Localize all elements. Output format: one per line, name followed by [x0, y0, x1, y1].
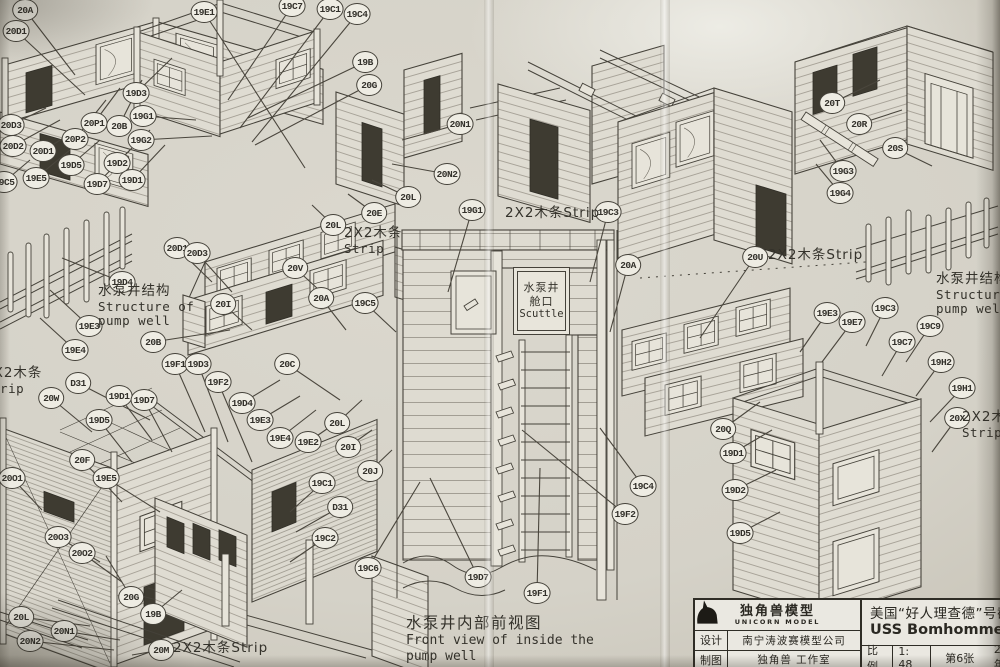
callout-20b: 20B [140, 331, 166, 353]
callout-20t: 20T [819, 92, 845, 114]
callout-19b: 19B [140, 603, 166, 625]
callout-19d2: 19D2 [722, 479, 749, 501]
unicorn-logo-icon [695, 600, 719, 626]
callout-20o1: 20O1 [0, 467, 25, 489]
callout-19d7: 19D7 [84, 173, 111, 195]
callout-19d7: 19D7 [131, 389, 158, 411]
callout-19c4: 19C4 [630, 475, 657, 497]
callout-20m: 20M [148, 639, 174, 661]
callout-20l: 20L [8, 606, 34, 628]
title-block-right: 美国“好人理查德”号截面 USS Bomhomme Ri 比例 1: 48 第6… [862, 600, 1000, 667]
callout-20n2: 20N2 [17, 630, 44, 652]
design-label: 设计 [695, 631, 728, 650]
strip-label-right-edge: 2X2木条Strip [962, 410, 1000, 440]
callout-20p2: 20P2 [62, 128, 89, 150]
caption-en-line2: pump well [406, 649, 594, 665]
callout-19e1: 19E1 [191, 1, 218, 23]
callout-20i: 20I [335, 436, 361, 458]
callout-20j: 20J [357, 460, 383, 482]
callout-20g: 20G [118, 586, 144, 608]
callout-19d1: 19D1 [720, 442, 747, 464]
strip-label-center: 2X2木条Strip [505, 206, 600, 222]
callout-20d1: 20D1 [3, 20, 30, 42]
callout-19e2: 19E2 [295, 431, 322, 453]
instruction-sheet: 20A20D119E119C719C119C419B20G19D319G119G… [0, 0, 1000, 667]
callout-20n1: 20N1 [51, 620, 78, 642]
callout-19b: 19B [352, 51, 378, 73]
scuttle-cn-line2: 舱口 [530, 295, 554, 309]
callout-20d3: 20D3 [0, 114, 24, 136]
callout-20r: 20R [846, 113, 872, 135]
strip-label-left-edge: 2X2木条Strip [0, 366, 42, 396]
draft-row: 制图 独角兽 工作室 [695, 651, 860, 667]
design-row: 设计 南宁涛波赛模型公司 [695, 631, 860, 651]
callout-19e3: 19E3 [814, 302, 841, 324]
callout-20g: 20G [356, 74, 382, 96]
strip-label-bottom-left: 2X2木条Strip [173, 641, 268, 657]
sheet-meta-row: 比例 1: 48 第6张 2017年 [862, 646, 1000, 667]
callout-20l: 20L [320, 214, 346, 236]
callout-20d3: 20D3 [184, 242, 211, 264]
callout-19e3: 19E3 [247, 409, 274, 431]
title-block-left: 独角兽模型 UNICORN MODEL 设计 南宁涛波赛模型公司 制图 独角兽 … [695, 600, 862, 667]
callout-19g1: 19G1 [459, 199, 486, 221]
callout-20b: 20B [106, 115, 132, 137]
callout-19c1: 19C1 [309, 472, 336, 494]
callout-20l: 20L [395, 186, 421, 208]
callout-19e5: 19E5 [93, 467, 120, 489]
callout-19e4: 19E4 [267, 427, 294, 449]
callout-20i: 20I [210, 293, 236, 315]
pump-well-structure-label-right: 水泵井结构Structure ofpump well [936, 272, 1000, 316]
scuttle-label-box: 水泵井 舱口 Scuttle [513, 267, 570, 335]
callout-19c4: 19C4 [344, 3, 371, 25]
callout-d31: D31 [327, 496, 353, 518]
callout-20o3: 20O3 [45, 526, 72, 548]
callout-19f2: 19F2 [612, 503, 639, 525]
callout-19c5: 19C5 [352, 292, 379, 314]
callout-19g1: 19G1 [130, 105, 157, 127]
callout-20d1: 20D1 [30, 140, 57, 162]
callout-19f1: 19F1 [524, 582, 551, 604]
callout-20n1: 20N1 [447, 113, 474, 135]
draft-value: 独角兽 工作室 [728, 651, 860, 667]
callout-19d5: 19D5 [58, 154, 85, 176]
scuttle-cn-line1: 水泵井 [524, 281, 560, 295]
callout-19e4: 19E4 [62, 339, 89, 361]
callout-20c: 20C [274, 353, 300, 375]
callout-19c9: 19C9 [917, 315, 944, 337]
title-block: 独角兽模型 UNICORN MODEL 设计 南宁涛波赛模型公司 制图 独角兽 … [693, 598, 1000, 667]
strip-label-center-left: 2X2木条Strip [344, 226, 402, 256]
pump-well-structure-label-left: 水泵井结构Structure ofpump well [98, 284, 194, 328]
brand-name-en: UNICORN MODEL [735, 619, 821, 626]
callout-d31: D31 [65, 372, 91, 394]
sheet-title-cn: 美国“好人理查德”号截面 [870, 606, 1000, 622]
callout-19d5: 19D5 [86, 409, 113, 431]
callout-19h2: 19H2 [928, 351, 955, 373]
callout-19g2: 19G2 [128, 129, 155, 151]
scale-label: 比例 [862, 646, 893, 667]
callout-19d3: 19D3 [123, 82, 150, 104]
callout-20n2: 20N2 [434, 163, 461, 185]
callout-19c1: 19C1 [317, 0, 344, 20]
sheet-title-cell: 美国“好人理查德”号截面 USS Bomhomme Ri [862, 600, 1000, 646]
callout-20q: 20Q [710, 418, 736, 440]
callout-20f: 20F [69, 449, 95, 471]
scale-value: 1: 48 [893, 646, 930, 667]
callout-19c6: 19C6 [355, 557, 382, 579]
callout-19c3: 19C3 [872, 297, 899, 319]
caption-cn: 水泵井内部前视图 [406, 611, 594, 633]
sheet-year: 2017年 [989, 646, 1000, 667]
callout-19f2: 19F2 [205, 371, 232, 393]
callout-19d3: 19D3 [185, 353, 212, 375]
callout-20o2: 20O2 [69, 542, 96, 564]
callout-20a: 20A [12, 0, 38, 21]
strip-label-right: 2X2木条Strip [768, 248, 863, 264]
callout-19h1: 19H1 [949, 377, 976, 399]
sheet-title-en: USS Bomhomme Ri [870, 622, 1000, 639]
callout-20v: 20V [282, 257, 308, 279]
brand-text: 独角兽模型 UNICORN MODEL [735, 605, 821, 626]
callout-19e5: 19E5 [23, 167, 50, 189]
callout-19c7: 19C7 [889, 331, 916, 353]
brand-name-cn: 独角兽模型 [740, 605, 815, 618]
callout-19e7: 19E7 [839, 311, 866, 333]
caption-en-line1: Front view of inside the [406, 633, 594, 649]
callout-20l: 20L [324, 412, 350, 434]
callout-19d1: 19D1 [119, 169, 146, 191]
callout-19d1: 19D1 [106, 385, 133, 407]
sheet-number: 第6张 [931, 646, 989, 667]
callout-19d5: 19D5 [727, 522, 754, 544]
callout-19c2: 19C2 [312, 527, 339, 549]
callout-20d2: 20D2 [0, 135, 26, 157]
callout-19g3: 19G3 [830, 160, 857, 182]
brand-cell: 独角兽模型 UNICORN MODEL [695, 600, 860, 631]
callout-19g4: 19G4 [827, 182, 854, 204]
callout-20s: 20S [882, 137, 908, 159]
callout-19d7: 19D7 [465, 566, 492, 588]
callout-20e: 20E [361, 202, 387, 224]
scuttle-en: Scuttle [519, 308, 563, 321]
callout-20u: 20U [742, 246, 768, 268]
front-view-caption: 水泵井内部前视图 Front view of inside the pump w… [406, 611, 594, 666]
callout-20a: 20A [615, 254, 641, 276]
callout-20a: 20A [308, 287, 334, 309]
design-value: 南宁涛波赛模型公司 [728, 631, 860, 650]
draft-label: 制图 [695, 651, 728, 667]
